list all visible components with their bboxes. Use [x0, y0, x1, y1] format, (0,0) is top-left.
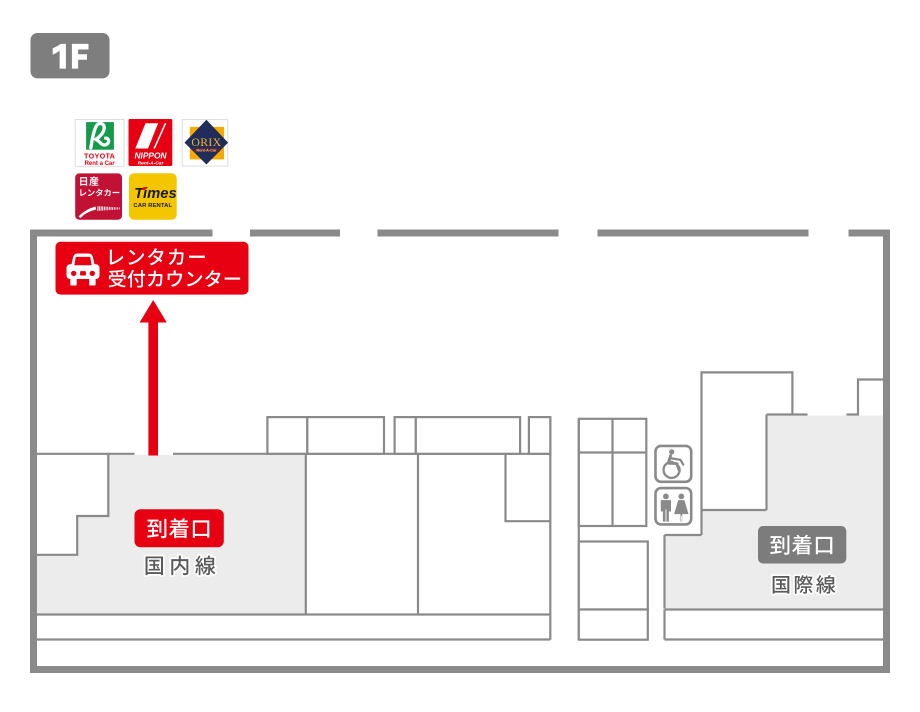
svg-text:Rent a Car: Rent a Car: [85, 161, 116, 167]
svg-text:NIPPON: NIPPON: [134, 150, 167, 160]
svg-text:TOYOTA: TOYOTA: [84, 152, 115, 161]
svg-text:Rent-A-Car: Rent-A-Car: [196, 148, 217, 152]
svg-text:Rent-A-Car: Rent-A-Car: [138, 160, 165, 166]
svg-text:Times: Times: [134, 186, 177, 202]
svg-text:CAR RENTAL: CAR RENTAL: [133, 203, 172, 209]
svg-text:ORIX: ORIX: [191, 135, 221, 149]
